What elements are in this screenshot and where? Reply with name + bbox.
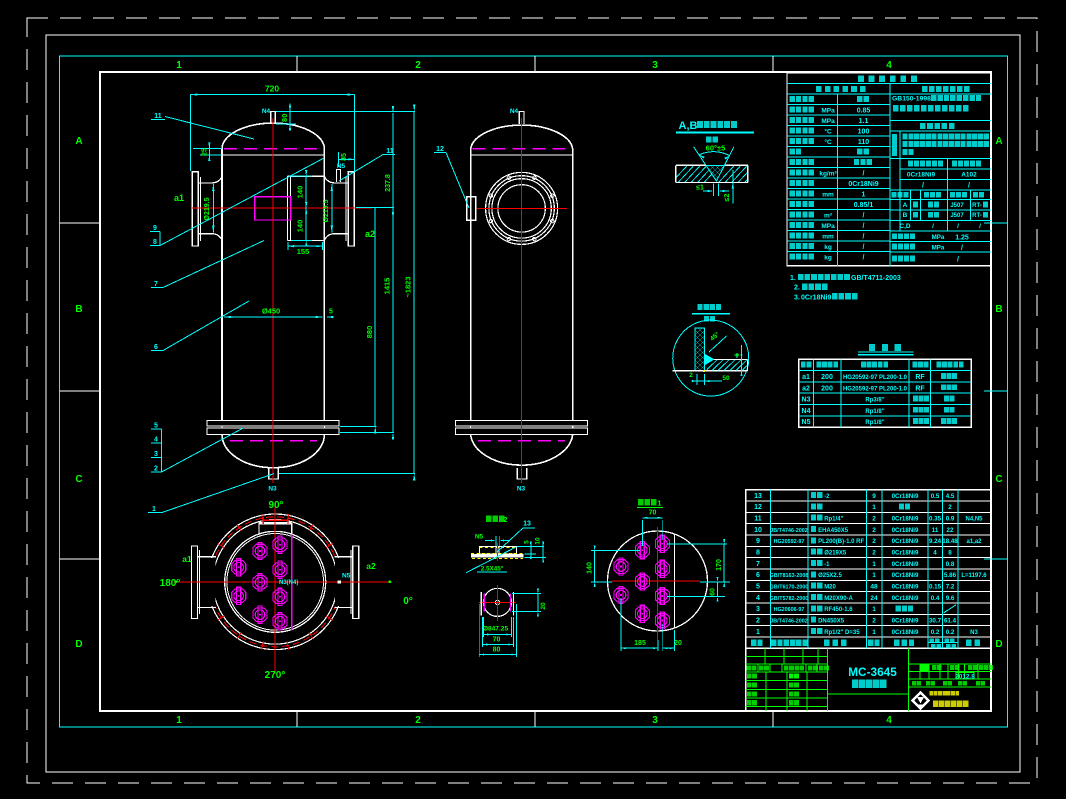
svg-text:a1,a2: a1,a2 xyxy=(966,539,982,545)
svg-text:11: 11 xyxy=(754,515,762,522)
svg-text:1.25: 1.25 xyxy=(955,235,969,242)
svg-text:155: 155 xyxy=(297,247,310,256)
svg-text:3.: 3. xyxy=(794,294,800,301)
svg-text:200: 200 xyxy=(821,385,833,392)
svg-text:0.85/1: 0.85/1 xyxy=(854,202,874,209)
svg-text:/: / xyxy=(863,244,865,251)
svg-text:HG20592-97 PL200-1.0: HG20592-97 PL200-1.0 xyxy=(843,375,908,381)
svg-text:2: 2 xyxy=(948,504,952,511)
svg-text:MC-3645: MC-3645 xyxy=(848,665,897,679)
svg-text:22: 22 xyxy=(947,527,954,534)
svg-text:1: 1 xyxy=(658,501,662,508)
svg-text:/: / xyxy=(932,223,934,230)
svg-text:B: B xyxy=(903,212,908,219)
svg-text:HG20592-97: HG20592-97 xyxy=(774,539,805,545)
svg-text:a2: a2 xyxy=(366,561,376,571)
svg-text:0Cr18Ni9: 0Cr18Ni9 xyxy=(892,493,919,500)
svg-text:EHA450X5: EHA450X5 xyxy=(818,528,849,534)
svg-text:°C: °C xyxy=(824,138,832,146)
svg-text:a1: a1 xyxy=(174,193,184,203)
svg-text:1: 1 xyxy=(862,192,866,199)
svg-text:°C: °C xyxy=(824,128,832,136)
svg-text:200: 200 xyxy=(821,374,833,381)
svg-text:B: B xyxy=(995,304,1002,315)
svg-text:3: 3 xyxy=(652,60,658,71)
svg-text:0Cr18Ni9: 0Cr18Ni9 xyxy=(892,629,919,636)
svg-text:9: 9 xyxy=(756,538,760,545)
svg-text:6: 6 xyxy=(756,572,760,579)
svg-text:MPa: MPa xyxy=(932,234,945,241)
svg-text:70: 70 xyxy=(649,510,657,517)
svg-text:/: / xyxy=(863,223,865,230)
svg-text:D: D xyxy=(75,639,82,650)
svg-text:Ø219.5: Ø219.5 xyxy=(323,199,330,222)
svg-text:-2: -2 xyxy=(824,494,830,500)
svg-text:237.8: 237.8 xyxy=(385,174,392,192)
svg-text:A: A xyxy=(903,202,908,209)
svg-text:HG20592-97 PL200-1.0: HG20592-97 PL200-1.0 xyxy=(843,386,908,392)
svg-text:1: 1 xyxy=(872,606,876,613)
svg-text:1: 1 xyxy=(176,60,182,71)
svg-text:/: / xyxy=(863,234,865,241)
svg-text:0Cr18Ni9: 0Cr18Ni9 xyxy=(892,549,919,556)
svg-text:MPa: MPa xyxy=(821,108,835,115)
svg-text:N5: N5 xyxy=(802,419,811,426)
svg-text:880: 880 xyxy=(365,326,374,339)
svg-text:5: 5 xyxy=(524,540,531,544)
svg-text:PL200(B)-1.0 RF: PL200(B)-1.0 RF xyxy=(818,539,864,545)
svg-text:61.4: 61.4 xyxy=(944,618,957,625)
svg-text:0.2: 0.2 xyxy=(946,629,955,636)
svg-text:Rp1/2" D=35: Rp1/2" D=35 xyxy=(824,630,860,636)
svg-text:A: A xyxy=(75,136,82,147)
svg-text:2.: 2. xyxy=(794,285,800,292)
svg-text:N3: N3 xyxy=(802,397,811,404)
svg-text:1415: 1415 xyxy=(383,278,392,295)
svg-text:N3: N3 xyxy=(970,630,978,636)
svg-text:4: 4 xyxy=(756,595,760,602)
svg-text:10: 10 xyxy=(754,527,762,534)
svg-text:11: 11 xyxy=(386,148,394,155)
svg-text:0°: 0° xyxy=(403,596,413,607)
svg-text:0Cr18Ni9: 0Cr18Ni9 xyxy=(892,561,919,568)
svg-text:2.5X45°: 2.5X45° xyxy=(481,565,504,573)
svg-text:0.9: 0.9 xyxy=(946,515,955,522)
svg-text:60: 60 xyxy=(710,588,717,596)
svg-text:kg: kg xyxy=(824,255,832,262)
svg-text:5: 5 xyxy=(756,584,760,591)
svg-text:B: B xyxy=(75,304,82,315)
svg-text:Rp1/4": Rp1/4" xyxy=(824,516,843,522)
svg-text:4: 4 xyxy=(154,437,158,444)
svg-text:13: 13 xyxy=(523,521,531,528)
svg-text:J507: J507 xyxy=(950,203,964,209)
svg-text:DN450X5: DN450X5 xyxy=(818,619,845,625)
svg-text:2: 2 xyxy=(872,527,876,534)
svg-text:a1: a1 xyxy=(802,374,810,381)
svg-text:/: / xyxy=(957,223,959,230)
svg-text:-1: -1 xyxy=(824,562,830,568)
svg-text:140: 140 xyxy=(587,562,594,574)
svg-text:2: 2 xyxy=(872,515,876,522)
svg-text:JB/T4746-2002: JB/T4746-2002 xyxy=(770,528,807,534)
svg-text:12: 12 xyxy=(754,504,762,511)
svg-text:0Cr18Ni9: 0Cr18Ni9 xyxy=(892,584,919,591)
svg-text:GB150-1998: GB150-1998 xyxy=(892,96,931,103)
svg-text:GB/T6170-2000: GB/T6170-2000 xyxy=(770,585,809,591)
svg-text:/: / xyxy=(863,255,865,262)
svg-text:3: 3 xyxy=(154,451,158,458)
svg-text:mm: mm xyxy=(822,234,834,241)
svg-text:0.4: 0.4 xyxy=(931,595,940,602)
svg-text:3: 3 xyxy=(652,715,658,726)
svg-text:9.6: 9.6 xyxy=(946,595,955,602)
svg-text:L=1197.6: L=1197.6 xyxy=(961,573,987,579)
svg-text:0Cr18Ni9: 0Cr18Ni9 xyxy=(892,572,919,579)
svg-text:2: 2 xyxy=(756,618,760,625)
svg-text:60°±5: 60°±5 xyxy=(706,144,726,153)
svg-text:720: 720 xyxy=(265,84,279,94)
svg-text:GB/T4711-2003: GB/T4711-2003 xyxy=(851,275,901,282)
svg-text:0Cr18Ni9: 0Cr18Ni9 xyxy=(892,527,919,534)
svg-text:3: 3 xyxy=(756,606,760,613)
svg-text:Rp1/8": Rp1/8" xyxy=(865,409,884,415)
svg-text:Ø847.25: Ø847.25 xyxy=(483,626,509,633)
svg-text:6: 6 xyxy=(154,344,158,351)
svg-text:GB/T5782-2000: GB/T5782-2000 xyxy=(770,596,809,602)
svg-text:≤1: ≤1 xyxy=(696,185,704,192)
svg-text:J507: J507 xyxy=(950,213,964,219)
svg-text:D: D xyxy=(995,639,1002,650)
svg-text:JB/T4746-2002: JB/T4746-2002 xyxy=(770,619,807,625)
svg-text:C,D: C,D xyxy=(899,223,911,230)
svg-text:/: / xyxy=(922,183,924,190)
svg-text:48: 48 xyxy=(870,584,878,591)
svg-text:kg: kg xyxy=(824,244,832,251)
svg-text:C: C xyxy=(995,474,1002,485)
svg-text:0Cr18Ni9: 0Cr18Ni9 xyxy=(801,294,831,301)
svg-text:RT-: RT- xyxy=(972,213,982,219)
svg-text:GB/T8163-2008: GB/T8163-2008 xyxy=(770,573,809,579)
svg-text:140: 140 xyxy=(296,186,305,199)
svg-text:2: 2 xyxy=(872,618,876,625)
svg-text:185: 185 xyxy=(634,640,646,647)
svg-text:m³: m³ xyxy=(824,213,833,220)
svg-text:2: 2 xyxy=(872,549,876,556)
svg-text:11: 11 xyxy=(154,113,162,120)
svg-text:a2: a2 xyxy=(802,385,810,392)
svg-text:0Cr18Ni9: 0Cr18Ni9 xyxy=(892,515,919,522)
svg-text:MPa: MPa xyxy=(932,245,945,252)
svg-text:11: 11 xyxy=(932,527,939,534)
svg-text:4: 4 xyxy=(886,60,892,71)
svg-text:1: 1 xyxy=(756,629,760,636)
svg-text:Ø219X5: Ø219X5 xyxy=(824,550,847,556)
svg-text:N5: N5 xyxy=(475,534,484,541)
svg-text:/: / xyxy=(968,183,970,190)
svg-text:N4: N4 xyxy=(802,408,811,415)
svg-text:RF: RF xyxy=(915,374,925,381)
svg-text:1.: 1. xyxy=(790,275,796,282)
svg-text:7.2: 7.2 xyxy=(946,584,955,591)
svg-text:24: 24 xyxy=(870,595,878,602)
svg-text:0Cr18Ni9: 0Cr18Ni9 xyxy=(892,618,919,625)
svg-text:N4,N5: N4,N5 xyxy=(965,516,983,522)
svg-text:/: / xyxy=(979,223,981,230)
svg-text:N5: N5 xyxy=(342,573,351,580)
svg-text:N3(N4): N3(N4) xyxy=(279,580,298,586)
svg-text:A,B: A,B xyxy=(679,120,698,132)
svg-text:2: 2 xyxy=(689,372,693,379)
svg-text:MPa: MPa xyxy=(821,118,835,125)
svg-text:1: 1 xyxy=(152,506,156,513)
svg-text:2: 2 xyxy=(154,466,158,473)
svg-text:9.24: 9.24 xyxy=(929,538,942,545)
svg-text:0.5: 0.5 xyxy=(931,493,940,500)
svg-text:5.86: 5.86 xyxy=(944,572,957,579)
svg-text:0Cr18Ni9: 0Cr18Ni9 xyxy=(907,172,936,179)
svg-text:0.15: 0.15 xyxy=(929,584,942,591)
svg-text:mm: mm xyxy=(822,192,834,199)
svg-text:2: 2 xyxy=(872,538,876,545)
svg-text:140: 140 xyxy=(296,220,305,233)
svg-text:170: 170 xyxy=(716,559,723,571)
svg-text:20: 20 xyxy=(674,640,682,647)
svg-text:M20: M20 xyxy=(824,585,836,591)
svg-text:110: 110 xyxy=(858,139,869,146)
svg-text:A102: A102 xyxy=(961,172,977,179)
svg-text:4: 4 xyxy=(933,549,937,556)
svg-text:≤2: ≤2 xyxy=(724,194,731,202)
svg-text:1: 1 xyxy=(872,629,876,636)
svg-text:RT-: RT- xyxy=(972,203,982,209)
svg-text:a1: a1 xyxy=(182,554,192,564)
svg-text:100: 100 xyxy=(858,129,870,136)
svg-text:5: 5 xyxy=(154,423,158,430)
svg-text:8: 8 xyxy=(756,549,760,556)
svg-text:4: 4 xyxy=(886,715,892,726)
svg-text:RF450-1.6: RF450-1.6 xyxy=(824,607,853,613)
svg-text:HG20606-97: HG20606-97 xyxy=(774,607,805,613)
svg-text:80: 80 xyxy=(493,647,501,654)
svg-text:20: 20 xyxy=(540,602,547,610)
svg-text:13: 13 xyxy=(754,493,762,500)
svg-text:18.48: 18.48 xyxy=(942,538,958,545)
svg-text:1.1: 1.1 xyxy=(859,118,869,125)
svg-text:/: / xyxy=(863,171,865,178)
svg-text:kg/m³: kg/m³ xyxy=(819,171,837,178)
svg-text:MPa: MPa xyxy=(821,223,835,230)
svg-text:50: 50 xyxy=(722,375,730,382)
svg-text:Ø25X2.5: Ø25X2.5 xyxy=(818,573,842,579)
svg-text:85: 85 xyxy=(341,153,348,161)
svg-text:0.35: 0.35 xyxy=(929,515,942,522)
svg-text:7: 7 xyxy=(154,281,158,288)
svg-text:9: 9 xyxy=(153,225,157,232)
svg-text:N5: N5 xyxy=(337,163,346,170)
svg-text:25: 25 xyxy=(202,148,209,156)
svg-text:0.2: 0.2 xyxy=(931,629,940,636)
svg-text:0Cr18Ni9: 0Cr18Ni9 xyxy=(892,538,919,545)
svg-text:8: 8 xyxy=(153,239,157,246)
svg-text:30.7: 30.7 xyxy=(929,618,942,625)
svg-text:/: / xyxy=(961,245,963,252)
svg-text:N3: N3 xyxy=(517,486,526,493)
svg-text:9: 9 xyxy=(872,493,876,500)
svg-text:70: 70 xyxy=(493,637,501,644)
svg-text:A: A xyxy=(995,136,1002,147)
svg-text:N4: N4 xyxy=(262,108,271,115)
svg-text:4.5: 4.5 xyxy=(946,493,955,500)
svg-text:80: 80 xyxy=(280,114,289,122)
svg-text:/: / xyxy=(863,213,865,220)
svg-text:a2: a2 xyxy=(365,229,375,239)
svg-text:RF: RF xyxy=(915,385,925,392)
svg-text:2012.8: 2012.8 xyxy=(955,673,975,680)
svg-text:7: 7 xyxy=(756,561,760,568)
svg-text:2: 2 xyxy=(504,517,508,524)
svg-text:1: 1 xyxy=(176,715,182,726)
svg-text:1: 1 xyxy=(872,561,876,568)
svg-text:M20X90-A: M20X90-A xyxy=(824,596,853,602)
svg-text:90°: 90° xyxy=(268,500,283,511)
svg-text:0.8: 0.8 xyxy=(946,561,955,568)
svg-text:Ø219.5: Ø219.5 xyxy=(204,197,211,220)
svg-text:0.85: 0.85 xyxy=(857,108,871,115)
svg-text:N4: N4 xyxy=(510,108,519,115)
svg-text:Ø450: Ø450 xyxy=(262,307,280,316)
svg-text:~1823: ~1823 xyxy=(404,276,413,297)
svg-text:1: 1 xyxy=(872,504,876,511)
svg-text:5: 5 xyxy=(329,309,333,316)
svg-text:Rp1/8": Rp1/8" xyxy=(865,420,884,426)
svg-text:N3: N3 xyxy=(268,486,277,493)
svg-text:C: C xyxy=(75,474,82,485)
svg-text:0Cr18Ni9: 0Cr18Ni9 xyxy=(892,595,919,602)
svg-text:1: 1 xyxy=(872,572,876,579)
svg-text:12: 12 xyxy=(436,146,444,153)
svg-text:0Cr18Ni9: 0Cr18Ni9 xyxy=(848,181,878,188)
svg-text:180°: 180° xyxy=(160,578,181,589)
svg-text:2: 2 xyxy=(415,60,421,71)
svg-text:8: 8 xyxy=(948,549,952,556)
svg-text:/: / xyxy=(957,257,959,264)
svg-text:270°: 270° xyxy=(265,670,286,681)
svg-text:10: 10 xyxy=(535,537,542,545)
svg-text:2: 2 xyxy=(415,715,421,726)
svg-text:Rp3/8": Rp3/8" xyxy=(865,398,884,404)
